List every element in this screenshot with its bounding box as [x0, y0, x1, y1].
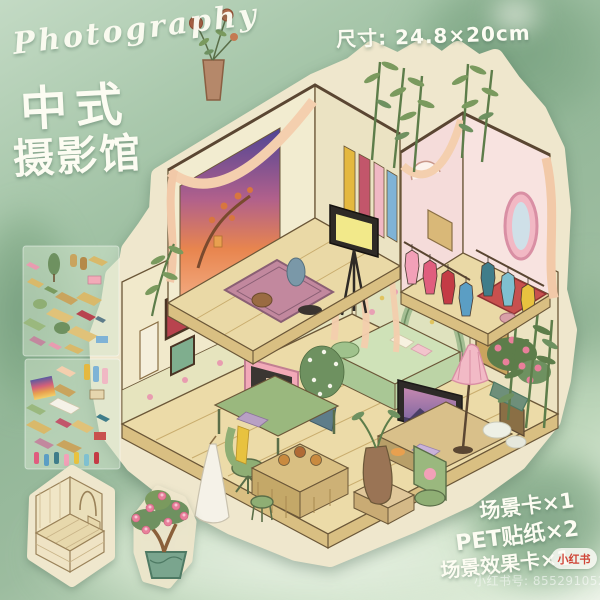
sticker-sheet-top: [23, 246, 119, 356]
tall-vase: [363, 446, 392, 504]
scene-card-illustration: [32, 470, 110, 582]
bonsai-illustration: [131, 490, 192, 584]
product-poster: Photography 中式 摄影馆 尺寸: 24.8×20cm 场景卡×1 P…: [0, 0, 600, 600]
main-dollhouse-illustration: [98, 48, 568, 558]
dressing-room: [401, 113, 554, 346]
xiaohongshu-badge: 小红书: [551, 548, 597, 569]
main-title-line2: 摄影馆: [12, 119, 144, 186]
sticker-sheet-bottom: [25, 359, 120, 469]
watermark-id: 小红书号: 855291052: [474, 572, 600, 589]
